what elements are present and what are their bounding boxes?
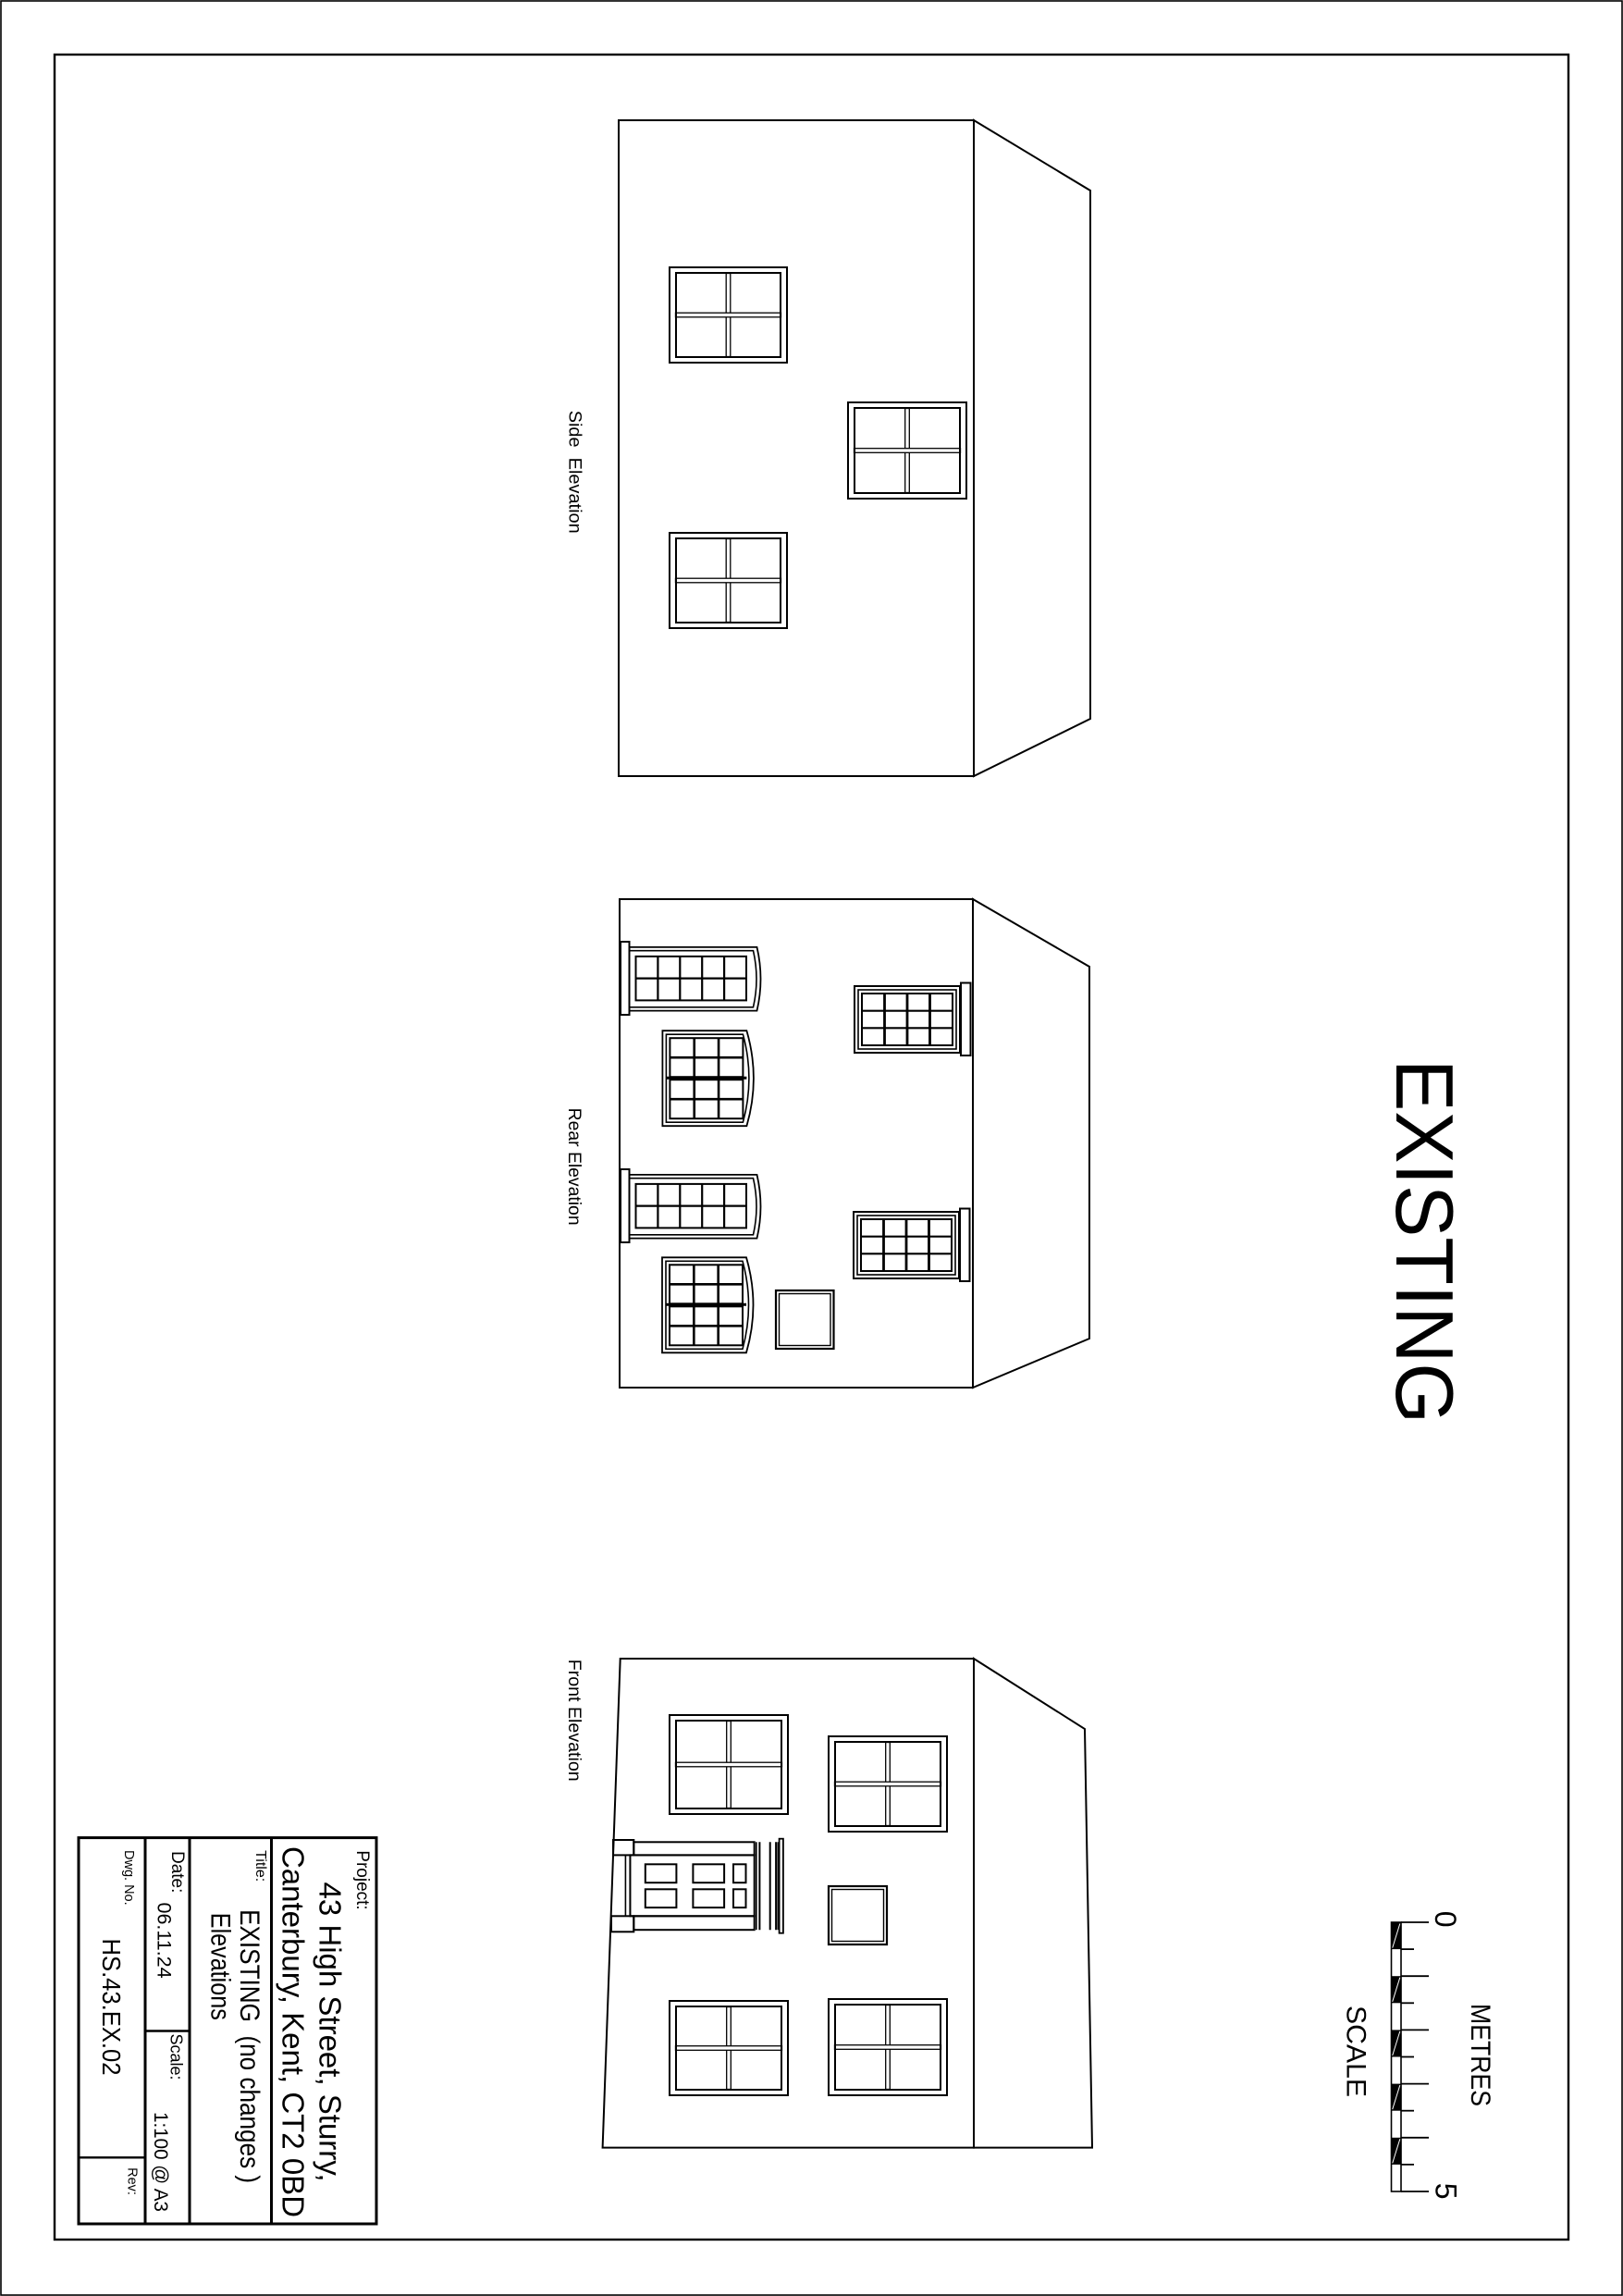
svg-text:Project:: Project: (352, 1850, 372, 1909)
svg-text:Front Elevation: Front Elevation (564, 1660, 584, 1782)
svg-text:METRES: METRES (1465, 2004, 1495, 2106)
svg-text:Elevations: Elevations (204, 1913, 235, 2020)
svg-text:43 High Street, Sturry,: 43 High Street, Sturry, (314, 1882, 348, 2181)
svg-text:06.11.24: 06.11.24 (153, 1903, 175, 1979)
svg-text:SCALE: SCALE (1341, 2006, 1371, 2097)
svg-text:Side Elevation: Side Elevation (565, 411, 584, 534)
svg-text:Dwg. No.: Dwg. No. (121, 1850, 136, 1906)
svg-text:EXISTING: EXISTING (1379, 1059, 1470, 1424)
svg-text:Canterbury, Kent, CT2 0BD: Canterbury, Kent, CT2 0BD (277, 1846, 311, 2217)
svg-text:HS.43.EX.02: HS.43.EX.02 (97, 1939, 126, 2076)
svg-text:Date:: Date: (167, 1851, 187, 1893)
svg-text:1:100 @ A3: 1:100 @ A3 (150, 2112, 171, 2212)
svg-text:5: 5 (1430, 2183, 1463, 2200)
svg-text:EXISTING (no changes ): EXISTING (no changes ) (234, 1909, 264, 2183)
svg-text:Title:: Title: (252, 1850, 268, 1882)
svg-text:Scale:: Scale: (166, 2034, 185, 2080)
svg-text:Rev:: Rev: (125, 2167, 140, 2195)
svg-text:0: 0 (1429, 1911, 1462, 1928)
svg-text:Rear Elevation: Rear Elevation (564, 1108, 584, 1226)
